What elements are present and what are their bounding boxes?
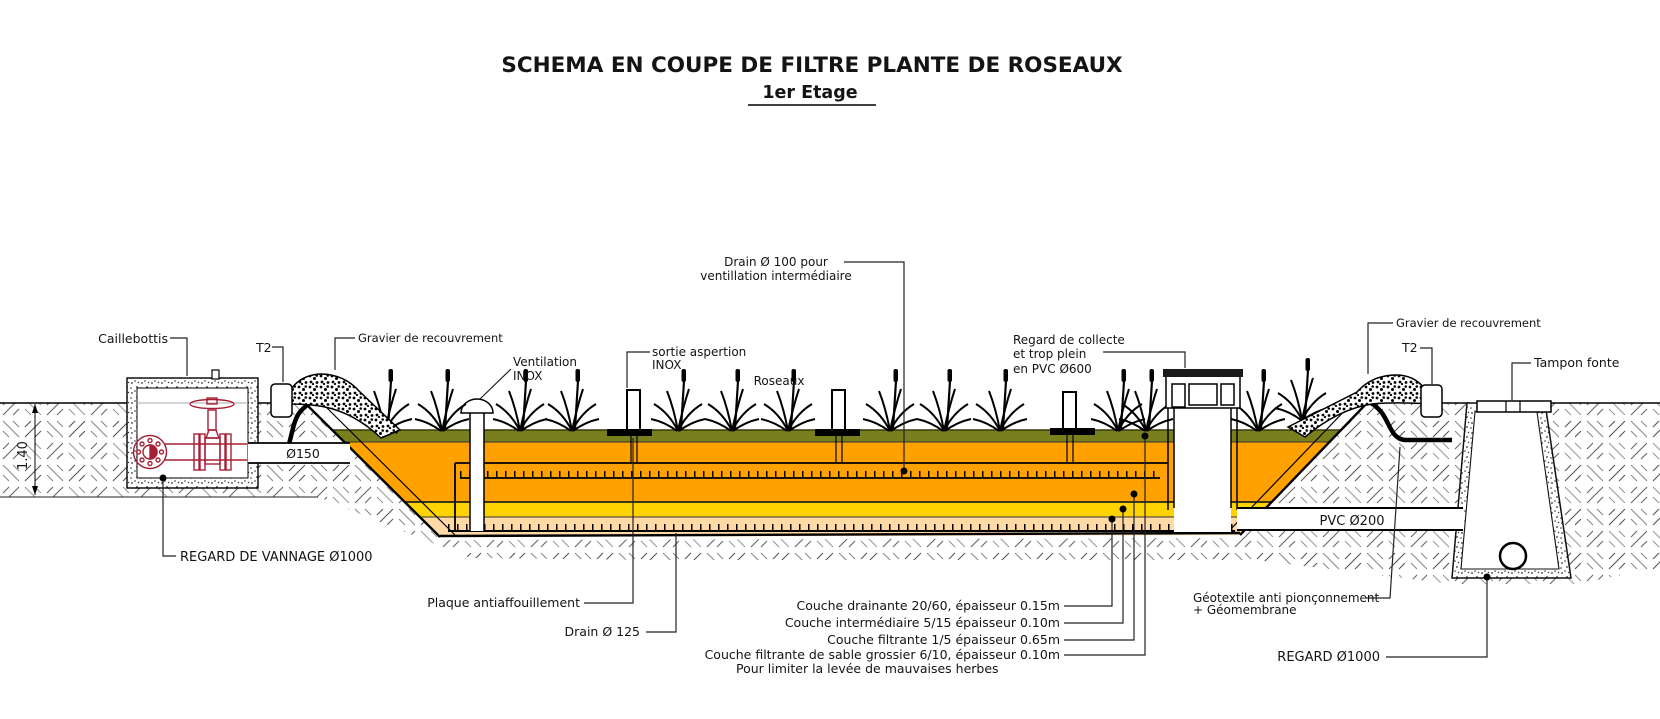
label-ventilation-2: INOX — [513, 369, 542, 383]
aspersion-riser — [627, 390, 640, 430]
leader-t2-left — [272, 347, 283, 382]
aspersion-plate — [815, 429, 860, 436]
leader-regard-1000 — [1386, 579, 1487, 657]
label-sortie-1: sortie aspertion — [652, 345, 746, 359]
svg-text:1.40: 1.40 — [16, 441, 31, 470]
label-pour-limiter: Pour limiter la levée de mauvaises herbe… — [736, 661, 999, 676]
label-plaque: Plaque antiaffouillement — [427, 595, 580, 610]
chamber-vent-slot — [1172, 384, 1185, 407]
label-regard-1000: REGARD Ø1000 — [1277, 650, 1380, 665]
label-diam150: Ø150 — [286, 446, 320, 461]
label-caillebottis: Caillebottis — [98, 331, 168, 346]
label-couche-filtrante: Couche filtrante 1/5 épaisseur 0.65m — [827, 632, 1060, 647]
page-subtitle: 1er Etage — [762, 83, 857, 103]
label-couche-drainante: Couche drainante 20/60, épaisseur 0.15m — [796, 598, 1060, 613]
label-couche-intermediaire: Couche intermédiaire 5/15 épaisseur 0.10… — [785, 615, 1060, 630]
leader-ventilation — [480, 369, 511, 399]
chamber-vent-slot — [1189, 384, 1217, 405]
label-drain125: Drain Ø 125 — [565, 624, 640, 639]
diagram-canvas: SCHEMA EN COUPE DE FILTRE PLANTE DE ROSE… — [0, 0, 1660, 719]
leader-regard-collecte — [1103, 352, 1185, 368]
manhole-cover — [1477, 401, 1551, 412]
aspersion-riser — [1063, 392, 1076, 430]
diagram-page: SCHEMA EN COUPE DE FILTRE PLANTE DE ROSE… — [0, 0, 1660, 719]
label-sortie-2: INOX — [652, 358, 681, 372]
label-gravier-left: Gravier de recouvrement — [358, 331, 503, 345]
label-t2-right: T2 — [1401, 340, 1418, 355]
aspersion-plate — [1050, 428, 1095, 435]
chamber-cover-vent — [212, 370, 219, 379]
label-pvc200: PVC Ø200 — [1320, 514, 1385, 529]
label-regard-collecte-2: et trop plein — [1013, 347, 1086, 361]
chamber-vent-slot — [1221, 384, 1234, 405]
aspersion-riser — [832, 390, 845, 430]
label-roseaux: Roseaux — [754, 374, 805, 388]
pvc-outlet-pipe: PVC Ø200 — [1237, 508, 1463, 530]
leader-sortie-aspertion — [627, 352, 650, 388]
leader-t2-right — [1420, 348, 1432, 384]
label-ventilation-1: Ventilation — [513, 355, 577, 369]
label-regard-vannage: REGARD DE VANNAGE Ø1000 — [180, 550, 373, 565]
aspersion-plate — [607, 429, 652, 436]
label-drain100-1: Drain Ø 100 pour — [724, 255, 828, 269]
leader-tampon-fonte — [1512, 363, 1531, 400]
t2-fitting-left — [271, 384, 292, 417]
manhole-pipe-outlet — [1500, 543, 1526, 569]
leader-gravier-left — [335, 338, 355, 370]
label-couche-sable: Couche filtrante de sable grossier 6/10,… — [705, 647, 1060, 662]
page-title: SCHEMA EN COUPE DE FILTRE PLANTE DE ROSE… — [501, 53, 1123, 78]
t2-fitting-right — [1421, 385, 1442, 417]
leader-gravier-right — [1368, 323, 1393, 374]
inlet-pipe: Ø150 — [248, 443, 350, 463]
label-regard-collecte-1: Regard de collecte — [1013, 333, 1125, 347]
label-regard-collecte-3: en PVC Ø600 — [1013, 362, 1092, 376]
leader-caillebottis — [170, 338, 187, 376]
collection-chamber-cap — [1163, 369, 1243, 377]
label-t2-left: T2 — [255, 340, 272, 355]
label-tampon-fonte: Tampon fonte — [1533, 355, 1620, 370]
label-geotextile-2: + Géomembrane — [1193, 603, 1297, 617]
collection-chamber — [1163, 369, 1243, 532]
label-gravier-right: Gravier de recouvrement — [1396, 316, 1541, 330]
label-drain100-2: ventillation intermédiaire — [700, 269, 851, 283]
valve-chamber — [127, 370, 258, 488]
